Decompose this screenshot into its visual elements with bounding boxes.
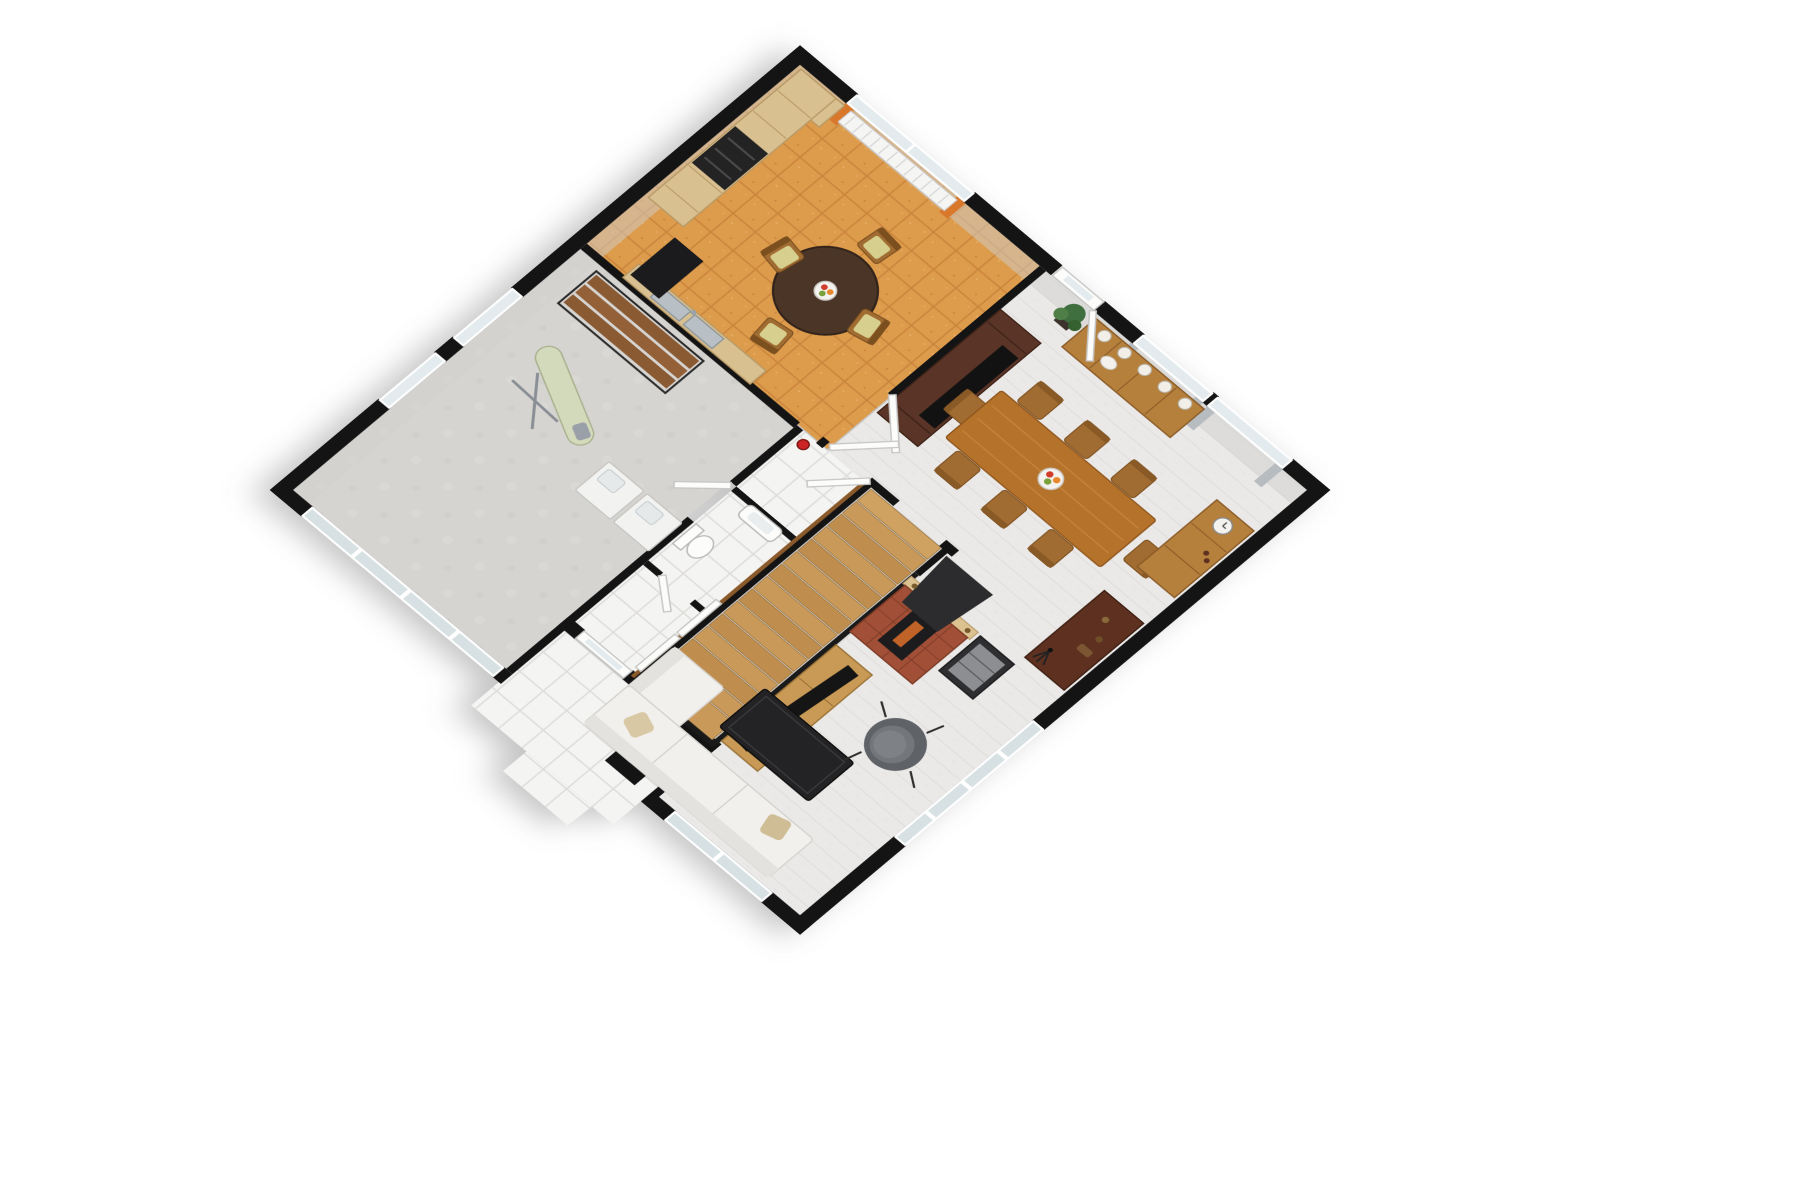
floorplan-page [0,0,1806,1200]
floorplan-3d-scene [270,45,1331,935]
utility-door-panel [674,482,731,489]
floorplan-svg [270,45,1331,935]
